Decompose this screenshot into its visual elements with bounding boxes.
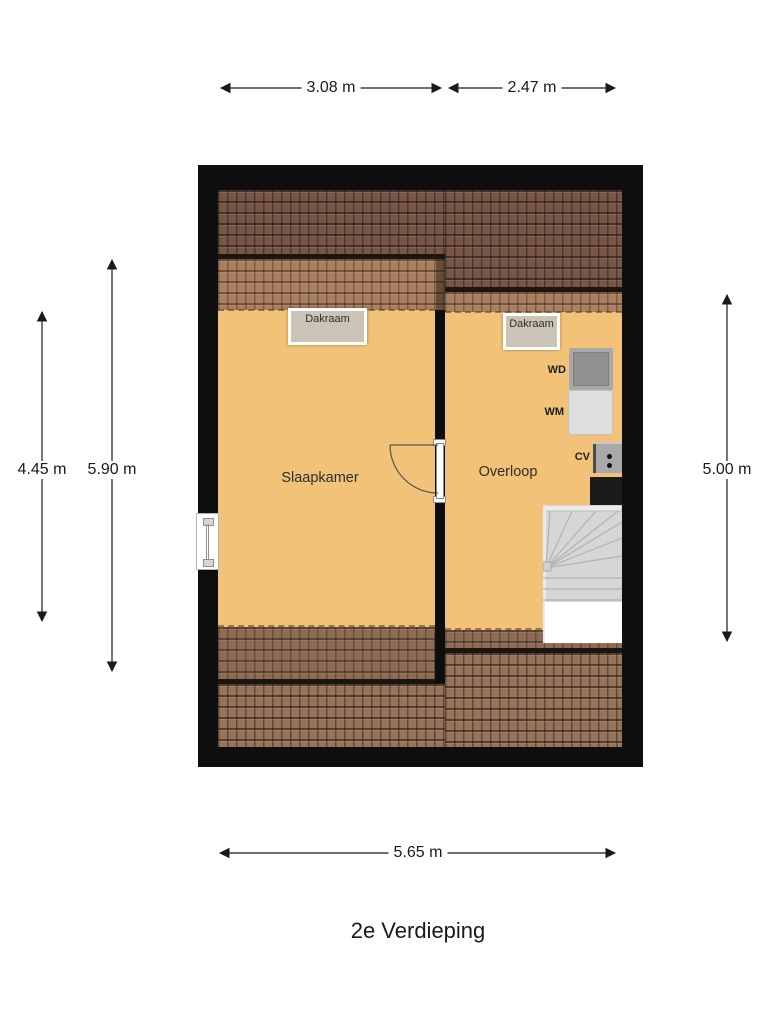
dim-right: 5.00 m xyxy=(698,461,757,479)
page-title: 2e Verdieping xyxy=(351,918,486,944)
label-wm: WM xyxy=(544,406,564,418)
dim-left-room: 4.45 m xyxy=(13,461,72,479)
door-swing-arc xyxy=(390,445,438,493)
dim-top-left: 3.08 m xyxy=(302,79,361,97)
room-label-slaapkamer: Slaapkamer xyxy=(281,470,358,486)
dim-top-right: 2.47 m xyxy=(503,79,562,97)
dim-bottom: 5.65 m xyxy=(389,844,448,862)
floorplan-page: { "title": "2e Verdieping", "dimensions"… xyxy=(0,0,768,1024)
room-label-overloop: Overloop xyxy=(479,464,538,480)
dim-left-total: 5.90 m xyxy=(83,461,142,479)
label-cv: CV xyxy=(575,451,590,463)
label-wd: WD xyxy=(548,364,566,376)
dimension-lines xyxy=(0,0,768,1024)
